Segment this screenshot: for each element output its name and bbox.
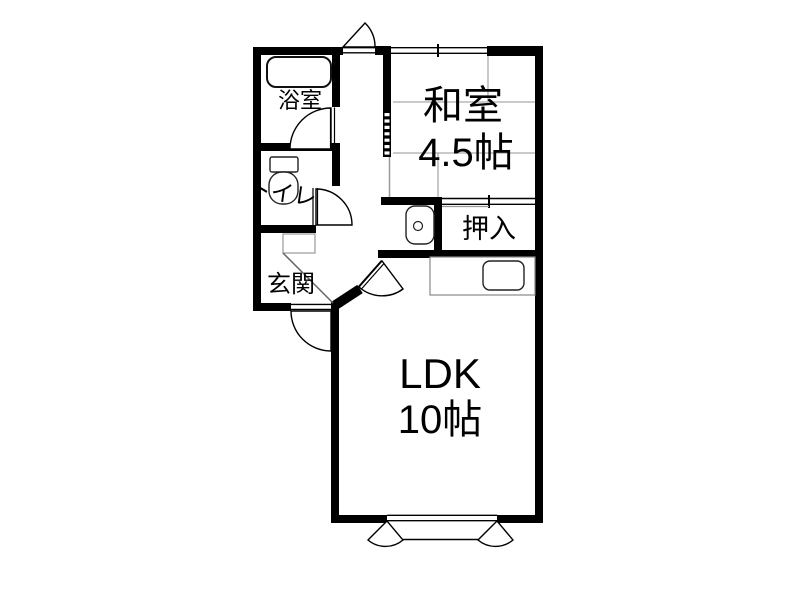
wall-top-bathroom (253, 47, 343, 55)
wall-right (535, 46, 543, 523)
entrance-door (291, 311, 331, 351)
label-ldk: LDK (399, 350, 481, 397)
bathroom-door (290, 108, 331, 149)
closet-sliding-doors (442, 195, 535, 208)
bathtub-icon (267, 57, 331, 87)
ldk-window-swing-left (368, 521, 403, 546)
wall-entrance-bottom (253, 303, 291, 311)
shoe-cabinet-icon (283, 234, 315, 253)
washing-machine-pan-icon (406, 206, 434, 244)
wall-diagonal (334, 289, 360, 306)
wall-ldk-bottom-left (331, 515, 387, 523)
label-entrance: 玄関 (267, 271, 315, 298)
ldk-window-swing-right (478, 521, 513, 546)
label-bathroom: 浴室 (278, 88, 322, 113)
window-ldk-bottom (387, 515, 497, 522)
toilet-door (316, 189, 352, 225)
wall-bathroom-right (332, 47, 340, 107)
wall-top-right (487, 46, 543, 56)
wall-japanese-room-bottom (381, 197, 442, 205)
label-ldk-size: 10帖 (398, 398, 483, 442)
label-japanese-room: 和室 (423, 84, 503, 128)
window-japanese-room (391, 44, 487, 57)
floorplan-drawing: 浴室 トイレ 玄関 和室 4.5帖 押入 LDK 10帖 (0, 0, 800, 600)
bathroom-door-leaf (331, 108, 335, 149)
hall-top-door (343, 23, 375, 47)
wall-ldk-left (331, 302, 339, 523)
wall-toilet-right (332, 143, 340, 186)
wall-closet-left (434, 205, 442, 250)
floorplan: 浴室 トイレ 玄関 和室 4.5帖 押入 LDK 10帖 (0, 0, 800, 600)
wall-toilet-bottom (253, 225, 316, 233)
label-japanese-room-size: 4.5帖 (418, 131, 514, 175)
wall-ldk-bottom-right (497, 515, 543, 523)
threshold-entrance-door (291, 303, 331, 311)
kitchen-sink-icon (483, 261, 524, 290)
label-closet: 押入 (462, 214, 516, 244)
